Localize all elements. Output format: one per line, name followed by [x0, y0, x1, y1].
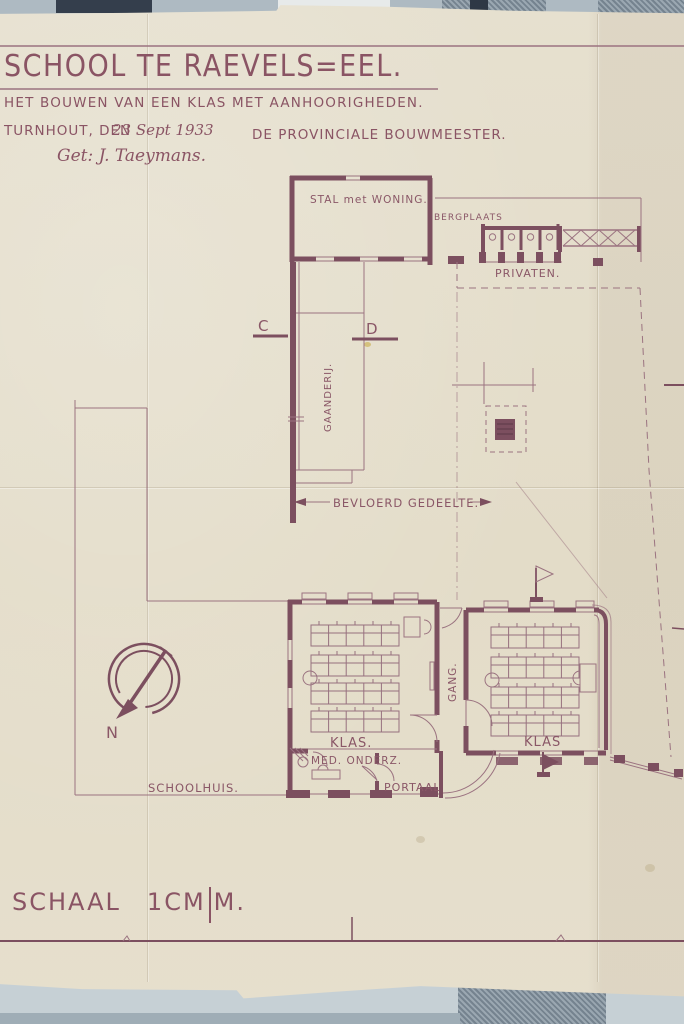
room-label-gaanderij: GAANDERIJ. — [323, 363, 334, 432]
dimension-label-bevloerd: BEVLOERD GEDEELTE. — [333, 496, 479, 510]
room-label-gang: GANG. — [447, 662, 459, 702]
room-label-privaten: PRIVATEN. — [495, 267, 560, 280]
room-label-bergplaats: BERGPLAATS — [434, 213, 503, 223]
drawing-title: SCHOOL TE RAEVELS=EEL. — [4, 49, 403, 84]
room-label-klas-right: KLAS — [524, 735, 561, 750]
room-label-portaal: PORTAAL — [384, 781, 440, 794]
room-label-stal: STAL met WONING. — [310, 194, 428, 206]
classroom-right: KLAS — [466, 601, 611, 765]
outbuildings: BERGPLAATS PRIVATEN. — [434, 198, 641, 280]
section-marker-d: D — [366, 320, 379, 338]
authority-label: DE PROVINCIALE BOUWMEESTER. — [252, 127, 507, 143]
scanned-blueprint-page: STAL met WONING. — [0, 0, 684, 1024]
flag-marker-north-entrance — [530, 566, 553, 602]
footer-rule — [0, 917, 684, 941]
yard-walls — [443, 750, 683, 798]
gallery: GAANDERIJ. — [288, 262, 364, 523]
handwritten-date: 23 Sept 1933 — [112, 121, 214, 139]
architect-signature: Get: J. Taeymans. — [57, 146, 206, 166]
privy-piers — [479, 252, 561, 263]
compass-north-label: N — [106, 723, 119, 742]
margin-ticks — [664, 385, 684, 629]
scale-note: SCHAAL1CMM. — [12, 884, 246, 920]
scale-divider-bar — [209, 887, 211, 923]
scale-word: SCHAAL — [12, 888, 121, 916]
paved-area-dimension: BEVLOERD GEDEELTE. — [294, 470, 492, 510]
room-label-med-onderz: MED. ONDERZ. — [311, 755, 402, 767]
compass-rose: N — [97, 632, 190, 742]
courtyard — [452, 262, 671, 757]
well — [495, 419, 515, 440]
scale-unit: M. — [214, 888, 246, 916]
classroom-left: KLAS. — [288, 593, 437, 753]
room-label-klas-left: KLAS. — [330, 736, 372, 751]
section-marker-c: C — [258, 317, 269, 335]
corridor: GANG. — [440, 608, 462, 702]
stable-block: STAL met WONING. — [290, 176, 432, 265]
med-room-and-portal: MED. ONDERZ. PORTAAL — [286, 748, 441, 798]
trellis-fence — [558, 198, 641, 266]
scale-value: 1CM — [147, 888, 206, 916]
section-markers: C D — [253, 317, 398, 339]
label-schoolhuis: SCHOOLHUIS. — [148, 781, 239, 795]
drawing-subtitle: HET BOUWEN VAN EEN KLAS MET AANHOORIGHED… — [4, 95, 424, 111]
